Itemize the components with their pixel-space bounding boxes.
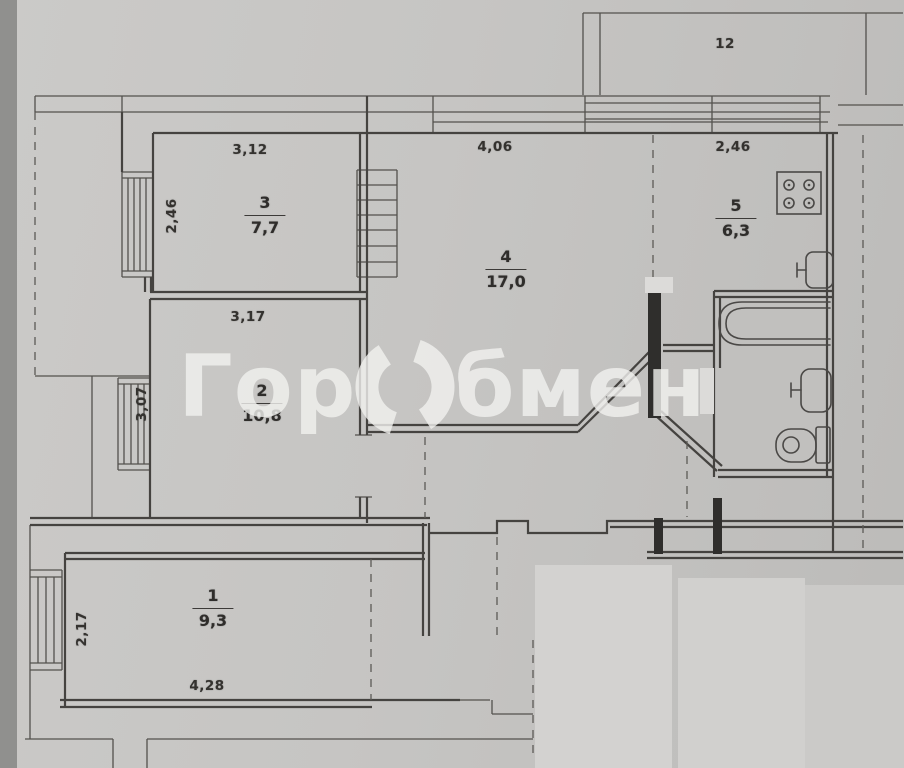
stove-icon: [777, 172, 821, 214]
room-5-width-dim: 2,46: [715, 139, 750, 155]
room-3-height-dim: 2,46: [164, 198, 180, 233]
room-4-label: 4 17,0: [485, 247, 526, 293]
vent-shaft-icon: [357, 170, 397, 277]
erased-patch-2: [678, 578, 805, 768]
room-5-area: 6,3: [722, 219, 750, 242]
room-4-width-dim: 4,06: [477, 139, 512, 155]
room-5-number: 5: [715, 196, 756, 219]
room-3-area: 7,7: [251, 216, 279, 239]
room-1-label: 1 9,3: [192, 586, 233, 632]
wall-piers: [648, 292, 722, 554]
room-4-area: 17,0: [486, 270, 525, 293]
room-5-label: 5 6,3: [715, 196, 756, 242]
room-3-width-dim: 3,12: [232, 142, 267, 158]
room-2-number: 2: [241, 381, 282, 404]
floorplan-scan: 12 3,12 2,46 4,06 2,46 3,17 3,07 2,17 4,…: [0, 0, 904, 768]
room-2-label: 2 10,8: [241, 381, 282, 427]
room-2-area: 10,8: [242, 404, 281, 427]
room-2-height-dim: 3,07: [134, 386, 150, 421]
balcony-label: 12: [715, 36, 735, 52]
room-1-area: 9,3: [199, 609, 227, 632]
erased-patch-1: [535, 565, 672, 768]
room-1-height-dim: 2,17: [74, 611, 90, 646]
room-1-width-dim: 4,28: [189, 678, 224, 694]
room-4-number: 4: [485, 247, 526, 270]
room-2-width-dim: 3,17: [230, 309, 265, 325]
room-3-number: 3: [244, 193, 285, 216]
room-3-label: 3 7,7: [244, 193, 285, 239]
erased-patch-3: [805, 585, 904, 768]
room-1-number: 1: [192, 586, 233, 609]
